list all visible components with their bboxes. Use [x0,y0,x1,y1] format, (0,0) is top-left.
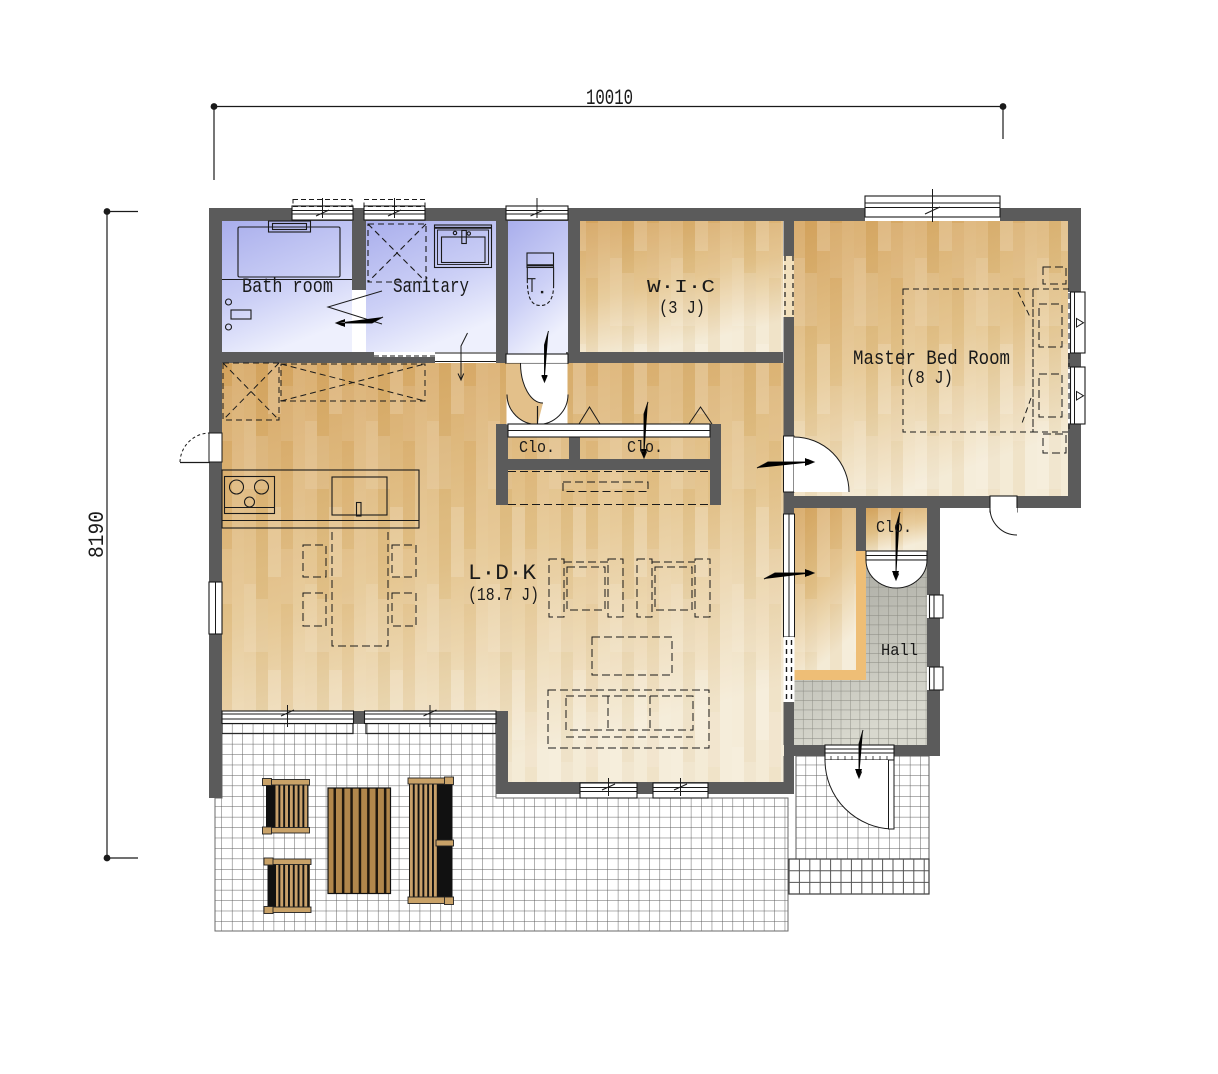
svg-text:Clo.: Clo. [627,438,663,457]
svg-text:8190: 8190 [85,511,110,558]
svg-text:Sanitary: Sanitary [393,276,469,299]
svg-text:Bath room: Bath room [242,276,333,299]
svg-text:10010: 10010 [586,86,633,111]
svg-text:L·D·K: L·D·K [468,561,537,586]
svg-text:(3 J): (3 J) [659,299,705,319]
svg-text:(18.7 J): (18.7 J) [468,586,539,606]
svg-text:W·I·C: W·I·C [647,277,715,298]
svg-text:Master Bed Room: Master Bed Room [853,348,1010,371]
svg-text:Hall: Hall [881,641,918,660]
svg-text:Clo.: Clo. [876,518,912,537]
svg-text:Clo.: Clo. [519,438,555,457]
svg-text:(8 J): (8 J) [906,369,953,389]
